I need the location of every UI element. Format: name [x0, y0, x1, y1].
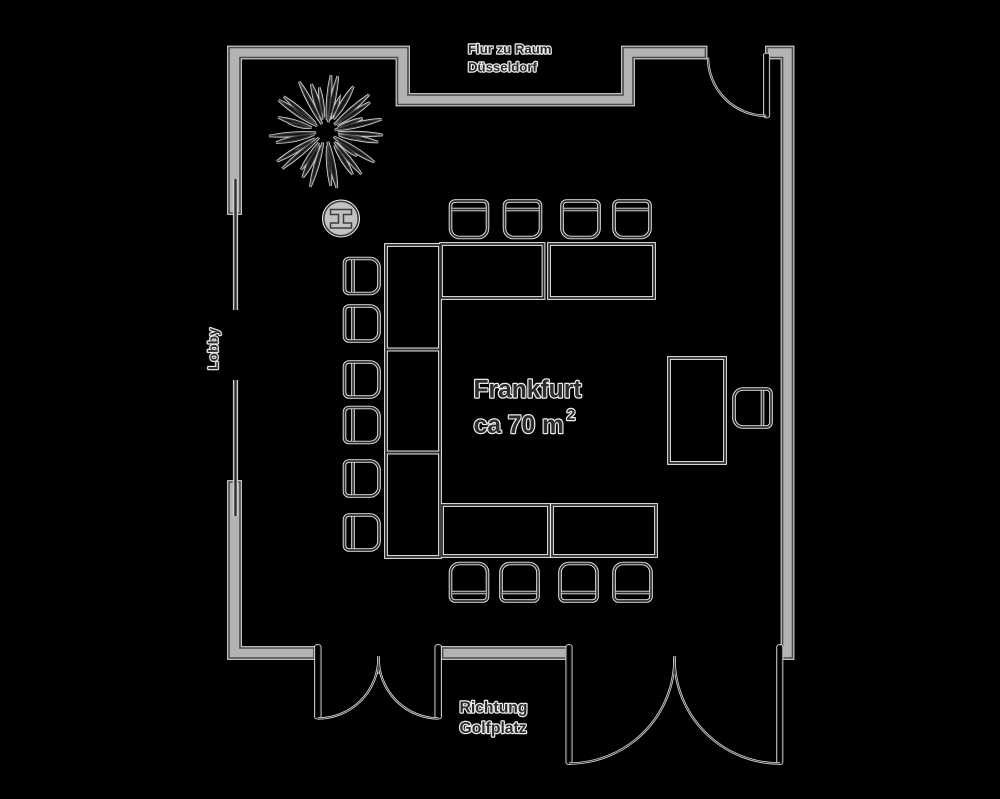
svg-text:ca 70 m: ca 70 m	[474, 412, 564, 439]
svg-text:Lobby: Lobby	[205, 328, 221, 370]
svg-text:Flur zu Raum: Flur zu Raum	[468, 42, 552, 57]
svg-text:Golfplatz: Golfplatz	[460, 720, 527, 737]
svg-text:Richtung: Richtung	[460, 700, 528, 717]
svg-text:Frankfurt: Frankfurt	[474, 377, 582, 404]
svg-text:Düsseldorf: Düsseldorf	[468, 60, 537, 75]
svg-text:2: 2	[567, 407, 576, 424]
